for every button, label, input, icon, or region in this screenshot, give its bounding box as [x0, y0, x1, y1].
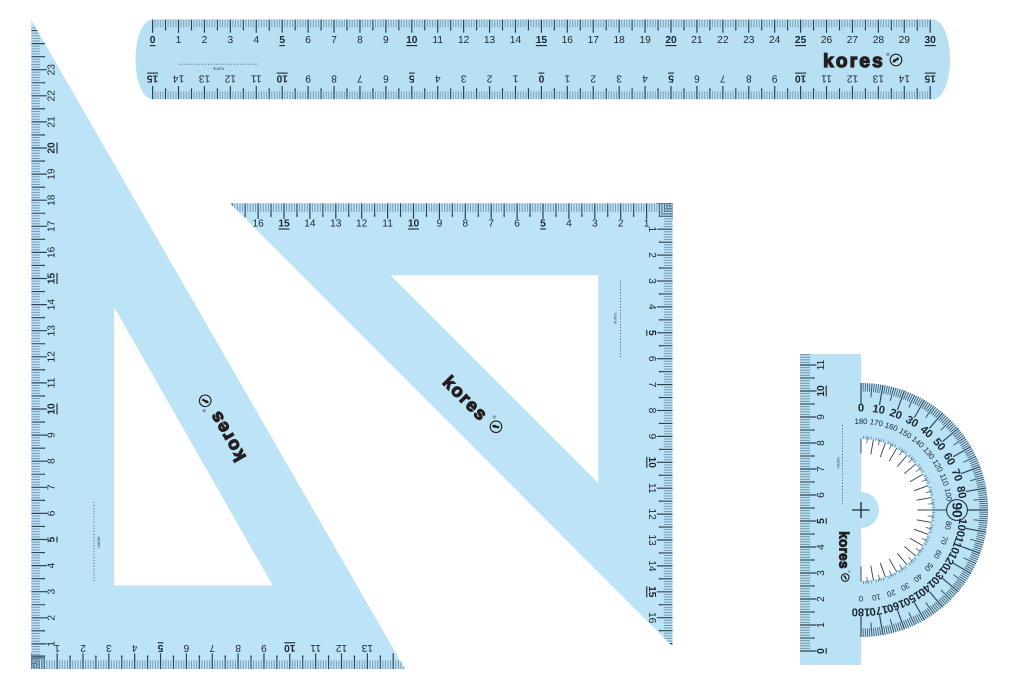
svg-text:1: 1: [564, 73, 570, 84]
svg-text:12: 12: [224, 73, 236, 84]
svg-text:1: 1: [646, 226, 657, 232]
svg-text:10: 10: [284, 642, 296, 653]
svg-text:12: 12: [458, 35, 470, 46]
svg-text:180: 180: [852, 606, 871, 618]
svg-text:16: 16: [47, 246, 58, 258]
svg-text:90: 90: [950, 502, 965, 518]
svg-text:11: 11: [816, 359, 827, 370]
svg-text:1: 1: [512, 73, 518, 84]
svg-text:23: 23: [47, 64, 58, 76]
svg-text:14: 14: [646, 560, 657, 572]
svg-text:2: 2: [47, 615, 58, 621]
svg-text:26: 26: [821, 35, 833, 46]
svg-text:0: 0: [816, 648, 827, 654]
svg-text:9: 9: [437, 219, 443, 230]
svg-text:name: name: [96, 536, 101, 548]
svg-text:8: 8: [816, 440, 827, 446]
svg-text:15: 15: [646, 586, 657, 598]
svg-text:7: 7: [488, 219, 494, 230]
svg-text:2: 2: [816, 596, 827, 602]
svg-text:23: 23: [743, 35, 755, 46]
svg-text:10: 10: [276, 73, 288, 84]
svg-text:12: 12: [646, 508, 657, 520]
svg-text:21: 21: [691, 35, 703, 46]
svg-text:24: 24: [769, 35, 781, 46]
svg-text:0: 0: [858, 594, 863, 603]
svg-text:15: 15: [147, 73, 159, 84]
svg-text:5: 5: [646, 330, 657, 336]
svg-text:27: 27: [847, 35, 859, 46]
svg-text:12: 12: [336, 642, 348, 653]
svg-text:22: 22: [717, 35, 729, 46]
svg-text:1: 1: [816, 622, 827, 628]
svg-text:13: 13: [646, 534, 657, 546]
svg-text:11: 11: [432, 35, 443, 46]
svg-text:2: 2: [202, 35, 208, 46]
svg-text:10: 10: [47, 403, 58, 415]
svg-text:8: 8: [235, 642, 241, 653]
svg-text:7: 7: [47, 484, 58, 490]
svg-text:15: 15: [278, 219, 290, 230]
svg-text:5: 5: [409, 73, 415, 84]
svg-text:4: 4: [642, 73, 648, 84]
svg-text:6: 6: [816, 492, 827, 498]
svg-text:2: 2: [80, 642, 86, 653]
svg-text:6: 6: [305, 35, 311, 46]
svg-text:13: 13: [872, 73, 884, 84]
svg-text:10: 10: [816, 385, 827, 397]
svg-text:4: 4: [816, 544, 827, 550]
svg-text:21: 21: [47, 116, 58, 128]
svg-text:11: 11: [382, 219, 393, 230]
svg-text:8: 8: [357, 35, 363, 46]
svg-text:14: 14: [173, 73, 185, 84]
svg-text:7: 7: [331, 35, 337, 46]
svg-text:4: 4: [253, 35, 259, 46]
svg-text:9: 9: [383, 35, 389, 46]
svg-text:13: 13: [484, 35, 496, 46]
svg-text:10: 10: [646, 457, 657, 469]
svg-text:15: 15: [47, 273, 58, 285]
svg-text:28: 28: [873, 35, 885, 46]
svg-text:10: 10: [408, 219, 420, 230]
svg-text:11: 11: [310, 642, 321, 653]
svg-text:7: 7: [646, 382, 657, 388]
svg-text:3: 3: [646, 278, 657, 284]
svg-text:9: 9: [47, 432, 58, 438]
svg-text:13: 13: [47, 325, 58, 337]
svg-text:2: 2: [590, 73, 596, 84]
svg-text:14: 14: [898, 73, 910, 84]
svg-text:4: 4: [566, 219, 572, 230]
svg-text:30: 30: [925, 35, 937, 46]
svg-text:18: 18: [613, 35, 625, 46]
svg-text:3: 3: [47, 589, 58, 595]
svg-text:9: 9: [816, 414, 827, 420]
svg-text:5: 5: [47, 536, 58, 542]
svg-text:80: 80: [954, 485, 968, 499]
svg-text:3: 3: [106, 642, 112, 653]
svg-text:4: 4: [132, 642, 138, 653]
svg-text:3: 3: [228, 35, 234, 46]
svg-text:22: 22: [47, 90, 58, 102]
svg-text:6: 6: [514, 219, 520, 230]
svg-text:1: 1: [176, 35, 182, 46]
svg-text:18: 18: [47, 194, 58, 206]
svg-text:8: 8: [646, 408, 657, 414]
svg-text:19: 19: [639, 35, 651, 46]
svg-text:8: 8: [47, 458, 58, 464]
svg-text:2: 2: [618, 219, 624, 230]
svg-text:16: 16: [562, 35, 574, 46]
svg-text:9: 9: [261, 642, 267, 653]
svg-text:20: 20: [665, 35, 677, 46]
svg-text:12: 12: [47, 351, 58, 363]
svg-text:13: 13: [361, 642, 373, 653]
svg-text:name: name: [212, 67, 224, 72]
svg-text:8: 8: [331, 73, 337, 84]
svg-text:13: 13: [198, 73, 210, 84]
svg-text:10: 10: [871, 403, 885, 417]
svg-text:7: 7: [720, 73, 726, 84]
svg-text:6: 6: [694, 73, 700, 84]
svg-text:12: 12: [846, 73, 858, 84]
svg-text:kores: kores: [823, 51, 885, 72]
svg-text:7: 7: [209, 642, 215, 653]
svg-text:6: 6: [383, 73, 389, 84]
svg-text:3: 3: [816, 570, 827, 576]
svg-text:name: name: [836, 457, 841, 469]
svg-text:14: 14: [510, 35, 522, 46]
svg-text:17: 17: [47, 220, 58, 232]
svg-text:5: 5: [816, 518, 827, 524]
svg-text:kores: kores: [836, 531, 851, 569]
svg-text:16: 16: [646, 612, 657, 624]
svg-text:14: 14: [47, 299, 58, 311]
svg-text:25: 25: [795, 35, 807, 46]
svg-text:11: 11: [251, 73, 262, 84]
svg-text:11: 11: [646, 483, 657, 494]
svg-text:180: 180: [854, 417, 868, 426]
svg-text:3: 3: [460, 73, 466, 84]
svg-text:5: 5: [668, 73, 674, 84]
svg-text:1: 1: [54, 642, 60, 653]
svg-text:3: 3: [592, 219, 598, 230]
svg-text:5: 5: [157, 642, 163, 653]
svg-text:4: 4: [435, 73, 441, 84]
svg-text:20: 20: [47, 142, 58, 154]
svg-text:0: 0: [150, 35, 156, 46]
svg-text:2: 2: [486, 73, 492, 84]
svg-text:29: 29: [899, 35, 911, 46]
svg-text:9: 9: [646, 434, 657, 440]
svg-text:17: 17: [588, 35, 600, 46]
svg-text:13: 13: [330, 219, 342, 230]
svg-text:14: 14: [304, 219, 316, 230]
svg-text:6: 6: [47, 510, 58, 516]
svg-text:8: 8: [746, 73, 752, 84]
svg-text:8: 8: [462, 219, 468, 230]
svg-text:11: 11: [821, 73, 832, 84]
svg-text:7: 7: [816, 466, 827, 472]
svg-text:10: 10: [795, 73, 807, 84]
svg-text:7: 7: [357, 73, 363, 84]
svg-text:16: 16: [252, 219, 264, 230]
svg-text:12: 12: [356, 219, 368, 230]
svg-text:19: 19: [47, 168, 58, 180]
svg-text:6: 6: [183, 642, 189, 653]
svg-text:5: 5: [279, 35, 285, 46]
svg-text:10: 10: [406, 35, 418, 46]
svg-text:6: 6: [646, 356, 657, 362]
svg-text:4: 4: [47, 562, 58, 568]
svg-text:0: 0: [858, 403, 864, 415]
svg-text:11: 11: [47, 377, 58, 388]
svg-text:15: 15: [536, 35, 548, 46]
svg-text:name: name: [613, 313, 618, 325]
svg-text:4: 4: [646, 304, 657, 310]
svg-text:9: 9: [772, 73, 778, 84]
svg-text:2: 2: [646, 252, 657, 258]
svg-text:3: 3: [616, 73, 622, 84]
svg-text:0: 0: [538, 73, 544, 84]
svg-text:15: 15: [924, 73, 936, 84]
svg-text:5: 5: [540, 219, 546, 230]
svg-text:9: 9: [305, 73, 311, 84]
